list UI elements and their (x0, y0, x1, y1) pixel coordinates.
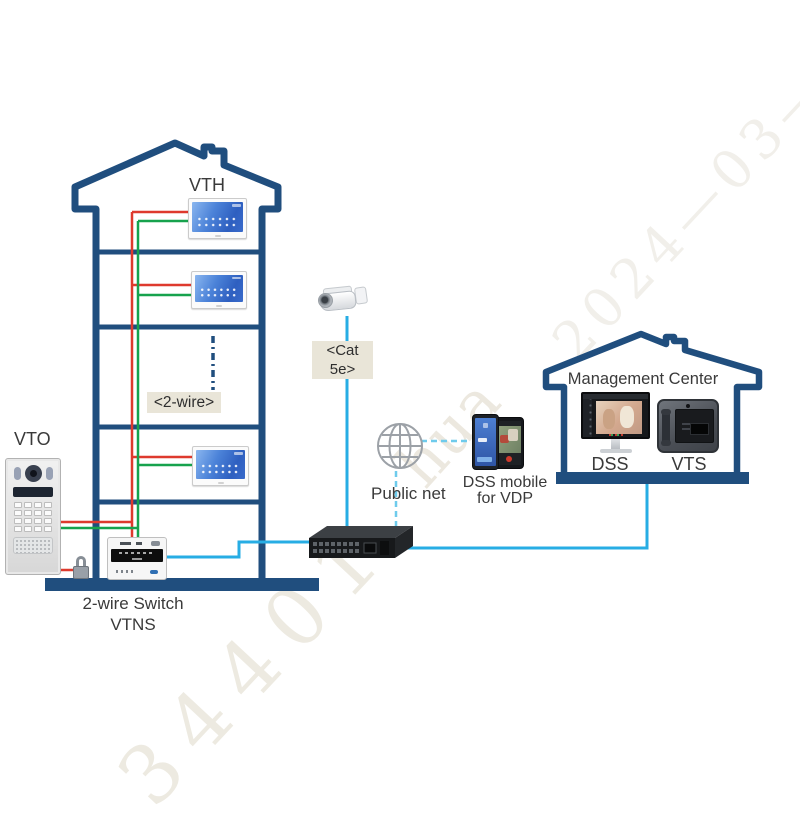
handset-icon (662, 409, 670, 446)
two-wire-green (60, 221, 193, 540)
vth-monitor-icon (192, 446, 249, 486)
vto-keypad (14, 502, 52, 532)
vto-speaker-grille (13, 537, 53, 554)
two-wire-label: <2-wire> (147, 392, 221, 413)
speaker-icon (46, 467, 53, 480)
dss-label: DSS (591, 454, 628, 475)
vtns-label-band (111, 549, 163, 562)
vts-label: VTS (671, 454, 706, 475)
vth-label: VTH (189, 175, 225, 196)
vts-screen (675, 409, 714, 443)
dss-video-window (596, 401, 642, 434)
building-outline (75, 143, 278, 580)
door-camera-icon (25, 465, 42, 482)
public-net-label: Public net (371, 484, 446, 504)
management-center-outline (546, 334, 759, 474)
vth-monitor-icon (188, 198, 247, 239)
vth-screen (195, 275, 243, 302)
diagram-canvas: 34401 hua 2024—03—2 (0, 0, 800, 800)
vto-label: VTO (14, 429, 51, 450)
dss-monitor-icon (581, 392, 650, 454)
vth-screen (192, 202, 243, 232)
vth-screen (196, 450, 245, 479)
vto-display (13, 487, 53, 497)
vtns-label: 2-wire Switch VTNS (82, 593, 183, 635)
building-base (45, 578, 319, 591)
bullet-camera-icon (317, 283, 369, 316)
vts-terminal-icon (657, 399, 719, 453)
management-center-label: Management Center (568, 370, 718, 389)
dss-mobile-label: DSS mobile for VDP (463, 475, 547, 507)
two-wire-red (60, 212, 193, 570)
vtns-to-switch-line (167, 542, 311, 557)
cat5e-label: <Cat 5e> (312, 341, 373, 379)
vth-monitor-icon (191, 271, 247, 309)
network-switch-icon (309, 526, 413, 558)
vto-door-station-icon (5, 458, 61, 575)
management-center-base (556, 472, 749, 484)
speaker-icon (14, 467, 21, 480)
padlock-icon (73, 556, 90, 579)
vtns-switch-icon (107, 537, 167, 580)
smartphone-app-icon (472, 414, 499, 470)
hangup-button-icon (506, 456, 512, 462)
globe-icon (374, 420, 426, 472)
vto-camera-row (14, 465, 53, 482)
